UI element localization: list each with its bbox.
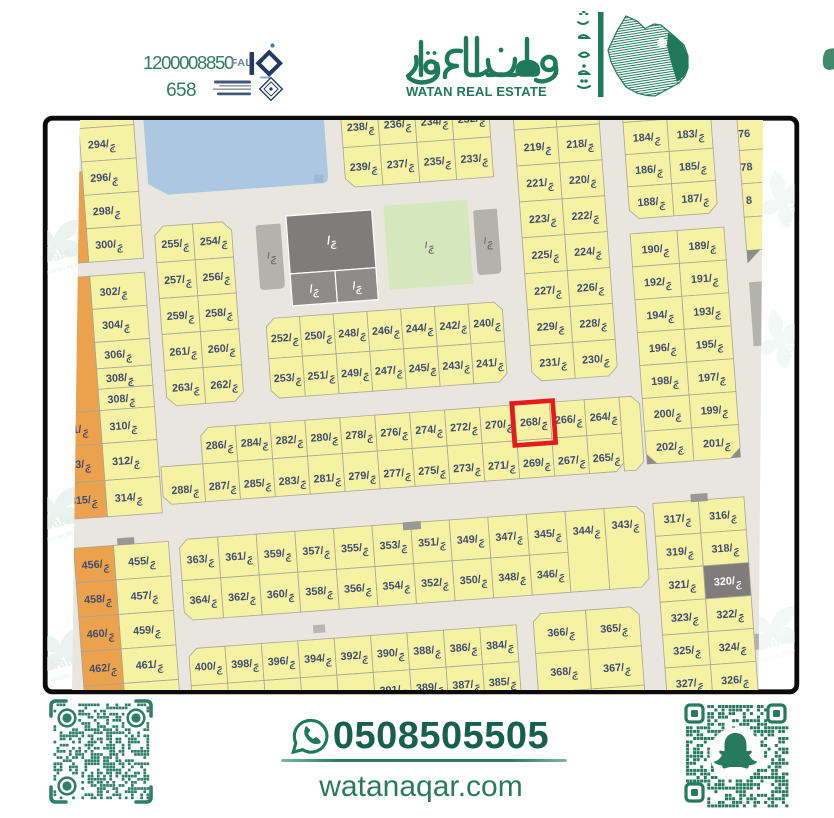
svg-text:280/: 280/ — [310, 431, 332, 445]
svg-text:197/: 197/ — [698, 371, 720, 385]
svg-text:364/: 364/ — [189, 594, 211, 608]
svg-text:259/: 259/ — [166, 309, 188, 323]
svg-text:watanaqar.com: watanaqar.com — [318, 770, 522, 803]
svg-text:184/: 184/ — [632, 131, 654, 145]
svg-text:253/: 253/ — [273, 372, 295, 386]
svg-text:459/: 459/ — [133, 624, 155, 638]
svg-text:394/: 394/ — [304, 652, 326, 666]
svg-text:268/: 268/ — [520, 416, 542, 430]
svg-text:349/: 349/ — [456, 533, 478, 547]
svg-text:285/: 285/ — [243, 477, 265, 491]
svg-text:455/: 455/ — [128, 555, 150, 569]
svg-text:229/: 229/ — [536, 320, 558, 334]
svg-text:249/: 249/ — [341, 367, 363, 381]
svg-text:235/: 235/ — [423, 155, 445, 169]
svg-text:265/: 265/ — [592, 452, 614, 466]
svg-text:78: 78 — [740, 161, 753, 174]
svg-text:461/: 461/ — [135, 659, 157, 673]
svg-text:460/: 460/ — [86, 627, 108, 641]
svg-text:358/: 358/ — [305, 585, 327, 599]
svg-text:284/: 284/ — [240, 436, 262, 450]
svg-text:386/: 386/ — [449, 642, 471, 656]
svg-text:458/: 458/ — [84, 593, 106, 607]
svg-text:220/: 220/ — [568, 174, 590, 188]
svg-text:255/: 255/ — [161, 238, 183, 252]
svg-text:287/: 287/ — [208, 480, 230, 494]
svg-text:199/: 199/ — [700, 404, 722, 418]
svg-text:191/: 191/ — [691, 272, 713, 286]
svg-text:231/: 231/ — [539, 356, 561, 370]
svg-text:367/: 367/ — [603, 662, 625, 676]
svg-text:286/: 286/ — [205, 439, 227, 453]
svg-text:360/: 360/ — [266, 588, 288, 602]
svg-text:257/: 257/ — [164, 274, 186, 288]
svg-text:246/: 246/ — [372, 324, 394, 338]
svg-text:248/: 248/ — [338, 327, 360, 341]
svg-text:272/: 272/ — [450, 421, 472, 435]
svg-text:314/: 314/ — [114, 491, 136, 505]
svg-text:263/: 263/ — [172, 381, 194, 395]
svg-text:225/: 225/ — [531, 249, 553, 263]
svg-text:356/: 356/ — [344, 582, 366, 596]
svg-text:76: 76 — [738, 128, 751, 141]
svg-text:247/: 247/ — [374, 364, 396, 378]
svg-text:317/: 317/ — [663, 513, 685, 527]
svg-text:252/: 252/ — [270, 332, 292, 346]
svg-text:350/: 350/ — [459, 574, 481, 588]
svg-text:281/: 281/ — [313, 472, 335, 486]
svg-text:219/: 219/ — [523, 141, 545, 155]
svg-text:190/: 190/ — [641, 243, 663, 257]
svg-text:244/: 244/ — [405, 322, 427, 336]
svg-text:221/: 221/ — [526, 177, 548, 191]
svg-text:355/: 355/ — [341, 542, 363, 556]
svg-text:359/: 359/ — [263, 547, 285, 561]
svg-text:FAL: FAL — [231, 57, 252, 69]
svg-text:320/: 320/ — [714, 575, 736, 589]
svg-text:282/: 282/ — [275, 434, 297, 448]
svg-text:306/: 306/ — [104, 348, 126, 362]
svg-text:304/: 304/ — [102, 319, 124, 333]
svg-text:261/: 261/ — [169, 345, 191, 359]
svg-text:298/: 298/ — [92, 205, 114, 219]
svg-text:258/: 258/ — [205, 307, 227, 321]
svg-text:283/: 283/ — [278, 475, 300, 489]
svg-text:321/: 321/ — [668, 578, 690, 592]
svg-text:388/: 388/ — [413, 644, 435, 658]
svg-text:WATAN REAL ESTATE: WATAN REAL ESTATE — [406, 84, 547, 99]
svg-text:239/: 239/ — [349, 161, 371, 175]
svg-text:267/: 267/ — [557, 454, 579, 468]
svg-text:294/: 294/ — [87, 138, 109, 152]
svg-text:363/: 363/ — [186, 553, 208, 567]
svg-text:183/: 183/ — [676, 128, 698, 142]
svg-text:658: 658 — [166, 80, 196, 101]
svg-text:323/: 323/ — [670, 611, 692, 625]
svg-text:352/: 352/ — [421, 577, 443, 591]
svg-text:344/: 344/ — [572, 524, 594, 538]
svg-text:325/: 325/ — [673, 644, 695, 658]
svg-text:185/: 185/ — [679, 160, 701, 174]
svg-text:324/: 324/ — [718, 641, 740, 655]
svg-text:223/: 223/ — [528, 213, 550, 227]
svg-text:271/: 271/ — [488, 459, 510, 473]
svg-text:193/: 193/ — [693, 305, 715, 319]
svg-text:202/: 202/ — [656, 440, 678, 454]
svg-text:1200008850: 1200008850 — [143, 52, 234, 73]
svg-text:270/: 270/ — [485, 418, 507, 432]
svg-text:277/: 277/ — [383, 467, 405, 481]
svg-text:198/: 198/ — [651, 375, 673, 389]
svg-text:186/: 186/ — [635, 163, 657, 177]
svg-text:243/: 243/ — [442, 359, 464, 373]
svg-text:236/: 236/ — [383, 118, 405, 132]
svg-text:318/: 318/ — [711, 542, 733, 556]
svg-text:195/: 195/ — [695, 338, 717, 352]
svg-text:347/: 347/ — [495, 530, 517, 544]
svg-text:365/: 365/ — [600, 622, 622, 636]
svg-text:224/: 224/ — [574, 245, 596, 259]
svg-text:266/: 266/ — [554, 413, 576, 427]
svg-text:196/: 196/ — [648, 342, 670, 356]
svg-text:390/: 390/ — [376, 647, 398, 661]
svg-text:245/: 245/ — [408, 362, 430, 376]
svg-text:237/: 237/ — [386, 158, 408, 172]
svg-text:228/: 228/ — [579, 317, 601, 331]
svg-text:462/: 462/ — [89, 662, 111, 676]
svg-text:192/: 192/ — [644, 276, 666, 290]
svg-text:233/: 233/ — [460, 153, 482, 167]
svg-text:354/: 354/ — [382, 579, 404, 593]
svg-text:322/: 322/ — [716, 608, 738, 622]
svg-text:351/: 351/ — [418, 536, 440, 550]
svg-text:269/: 269/ — [523, 457, 545, 471]
svg-text:326/: 326/ — [721, 674, 743, 688]
svg-text:288/: 288/ — [171, 484, 193, 498]
svg-text:200/: 200/ — [653, 408, 675, 422]
svg-text:343/: 343/ — [611, 518, 633, 532]
svg-text:189/: 189/ — [688, 240, 710, 254]
svg-text:273/: 273/ — [453, 462, 475, 476]
svg-text:260/: 260/ — [207, 343, 229, 357]
svg-text:396/: 396/ — [267, 655, 289, 669]
svg-text:302/: 302/ — [99, 286, 121, 300]
svg-text:276/: 276/ — [380, 426, 402, 440]
svg-text:300/: 300/ — [95, 238, 117, 252]
svg-text:296/: 296/ — [90, 171, 112, 185]
svg-text:308/: 308/ — [107, 393, 129, 407]
svg-text:384/: 384/ — [486, 639, 508, 653]
svg-text:353/: 353/ — [379, 539, 401, 553]
svg-text:274/: 274/ — [415, 424, 437, 438]
svg-text:238/: 238/ — [346, 121, 368, 135]
svg-text:316/: 316/ — [709, 509, 731, 523]
svg-text:218/: 218/ — [566, 138, 588, 152]
svg-text:241/: 241/ — [476, 357, 498, 371]
svg-text:385/: 385/ — [488, 676, 510, 690]
svg-text:312/: 312/ — [112, 455, 134, 469]
svg-text:362/: 362/ — [228, 591, 250, 605]
svg-text:256/: 256/ — [202, 271, 224, 285]
svg-text:262/: 262/ — [210, 378, 232, 392]
svg-text:230/: 230/ — [582, 353, 604, 367]
svg-text:327/: 327/ — [675, 677, 697, 691]
svg-text:201/: 201/ — [703, 437, 725, 451]
svg-text:366/: 366/ — [547, 626, 569, 640]
svg-text:310/: 310/ — [109, 420, 131, 434]
svg-text:457/: 457/ — [130, 590, 152, 604]
svg-text:368/: 368/ — [550, 666, 572, 680]
svg-text:345/: 345/ — [534, 528, 556, 542]
svg-text:308/: 308/ — [106, 372, 128, 386]
svg-text:254/: 254/ — [199, 235, 221, 249]
svg-text:250/: 250/ — [304, 329, 326, 343]
svg-text:227/: 227/ — [534, 284, 556, 298]
svg-text:188/: 188/ — [637, 196, 659, 210]
svg-text:346/: 346/ — [537, 568, 559, 582]
svg-text:278/: 278/ — [345, 429, 367, 443]
svg-text:279/: 279/ — [348, 470, 370, 484]
svg-text:264/: 264/ — [589, 411, 611, 425]
svg-text:0508505505: 0508505505 — [333, 715, 549, 757]
svg-text:392/: 392/ — [340, 650, 362, 664]
svg-text:222/: 222/ — [571, 210, 593, 224]
svg-text:242/: 242/ — [439, 320, 461, 334]
svg-text:348/: 348/ — [498, 571, 520, 585]
svg-text:319/: 319/ — [666, 546, 688, 560]
svg-text:240/: 240/ — [473, 317, 495, 331]
svg-text:8: 8 — [746, 195, 753, 207]
svg-text:361/: 361/ — [225, 550, 247, 564]
svg-text:226/: 226/ — [576, 281, 598, 295]
svg-text:456/: 456/ — [81, 558, 103, 572]
svg-text:187/: 187/ — [681, 192, 703, 206]
svg-text:357/: 357/ — [302, 545, 324, 559]
svg-text:400/: 400/ — [194, 660, 216, 674]
svg-text:398/: 398/ — [231, 658, 253, 672]
svg-text:275/: 275/ — [418, 464, 440, 478]
svg-text:251/: 251/ — [307, 369, 329, 383]
svg-text:194/: 194/ — [646, 309, 668, 323]
